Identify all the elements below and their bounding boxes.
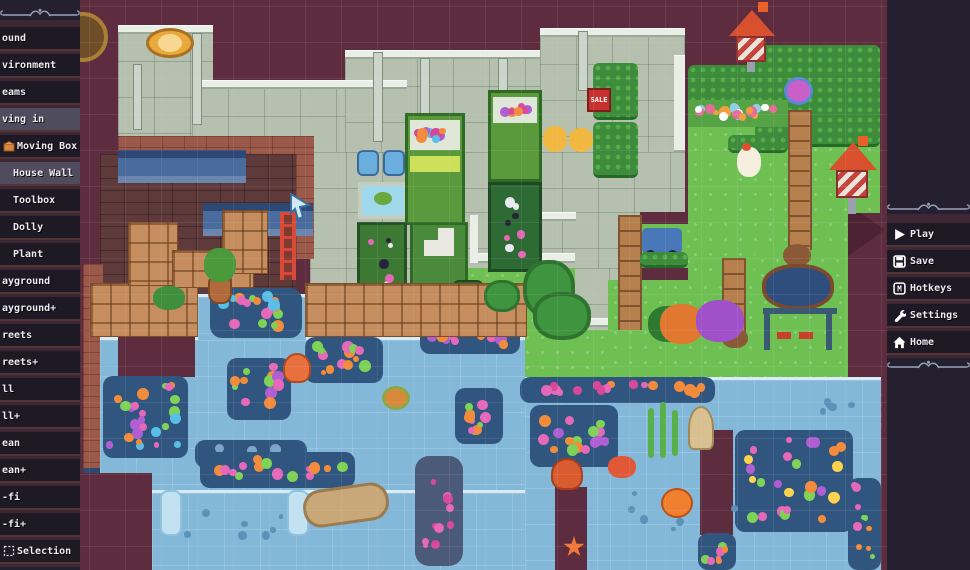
coral-dot <box>716 558 722 564</box>
layers-panel: oundvironmenteamsving inMoving BoxHouse … <box>0 0 80 570</box>
planter <box>593 122 638 178</box>
plant <box>204 248 236 282</box>
flower-bed <box>688 100 788 127</box>
octopus <box>283 353 311 383</box>
sidebar-item-ayground[interactable]: ayground <box>0 270 80 292</box>
chicken <box>737 147 761 177</box>
kelp <box>660 402 666 458</box>
coral-dot <box>477 400 488 411</box>
coral-patch <box>848 478 881 570</box>
sidebar-item-label: vironment <box>2 60 56 71</box>
coral-dot <box>769 105 777 113</box>
coral-dot <box>517 230 526 239</box>
coral-dot <box>852 483 861 492</box>
bush <box>153 286 185 310</box>
panel-ornament <box>0 6 80 20</box>
sign-flag <box>858 136 868 146</box>
coral-dot <box>539 415 551 427</box>
sidebar-item-house-wall[interactable]: House Wall <box>0 162 80 184</box>
coral-dot <box>832 461 842 471</box>
sidebar-item-selection[interactable]: Selection <box>0 540 80 562</box>
coral-dot <box>826 402 834 410</box>
coral-dot <box>321 370 327 376</box>
coral-dot <box>518 251 525 258</box>
selection-icon <box>3 545 15 557</box>
coral-dot <box>817 486 827 496</box>
sidebar-item-reets-plus[interactable]: reets+ <box>0 351 80 373</box>
sidebar-item-label: reets+ <box>2 357 38 368</box>
bg-gap <box>80 473 152 570</box>
coral-patch <box>530 405 618 467</box>
sidebar-item-fi[interactable]: -fi <box>0 486 80 508</box>
mouse-cursor <box>288 193 312 221</box>
sidebar-item-label: ll+ <box>2 411 20 422</box>
coral-dot <box>120 401 131 412</box>
pebbles <box>170 505 290 545</box>
coral-dot <box>707 557 715 565</box>
hedge <box>755 45 880 147</box>
coral-dot <box>805 481 817 493</box>
coral-dot <box>697 383 705 391</box>
coral-dot <box>379 259 389 269</box>
coral-dot <box>287 471 298 482</box>
sidebar-item-ean-plus[interactable]: ean+ <box>0 459 80 481</box>
chick <box>569 128 593 152</box>
bg-gap <box>555 487 587 570</box>
actions-list: PlaySaveMHotkeysSettingsHome <box>887 214 970 358</box>
sidebar-item-label: Toolbox <box>13 195 55 206</box>
coral-patch <box>305 337 383 383</box>
post <box>133 64 142 130</box>
coral-dot <box>353 356 359 362</box>
shelf-items <box>493 190 537 264</box>
action-button-label: Settings <box>910 310 958 321</box>
coral-dot <box>431 540 440 549</box>
coral-dot <box>465 403 473 411</box>
coral-dot <box>272 468 283 479</box>
layers-list: oundvironmenteamsving inMoving BoxHouse … <box>0 20 80 567</box>
sign-board <box>836 170 868 198</box>
coral-dot <box>162 423 168 429</box>
coral-dot <box>432 135 440 143</box>
machine-display <box>493 97 537 123</box>
coral-dot <box>243 368 250 375</box>
chair <box>357 150 379 176</box>
bush <box>484 280 520 312</box>
coral-dot <box>818 515 826 523</box>
coral-dot <box>385 274 394 283</box>
coral-dot <box>343 360 354 371</box>
action-button-label: Play <box>910 229 934 240</box>
bg-gap <box>118 337 195 377</box>
coral-dot <box>719 112 728 121</box>
tree <box>533 292 591 340</box>
coral-dot <box>326 365 335 374</box>
coral-dot <box>505 220 511 226</box>
sign-roof <box>729 10 775 36</box>
coral-dot <box>138 416 146 424</box>
swing-seat <box>799 332 813 339</box>
coral-dot <box>557 390 563 396</box>
crystal <box>160 490 182 536</box>
coral-dot <box>451 337 459 345</box>
coral-dot <box>786 437 792 443</box>
coral-dot <box>499 340 508 349</box>
coral-dot <box>229 469 237 477</box>
coral-dot <box>480 412 491 423</box>
sidebar-item-label: eams <box>2 87 26 98</box>
coral-dot <box>671 527 675 531</box>
crab <box>608 456 636 478</box>
home-icon <box>893 336 906 349</box>
sidebar-item-ean[interactable]: ean <box>0 432 80 454</box>
coral-dot <box>695 106 702 113</box>
coral-dot <box>684 384 696 396</box>
sidebar-item-label: -fi <box>2 492 20 503</box>
sidebar-item-label: House Wall <box>13 168 73 179</box>
action-button-label: Save <box>910 256 934 267</box>
crates <box>128 222 178 286</box>
coral-dot <box>253 297 261 305</box>
wood-path <box>618 215 642 330</box>
coral-dot <box>447 521 455 529</box>
shell <box>688 406 714 450</box>
coral-dot <box>240 377 248 385</box>
coral-dot <box>446 504 454 512</box>
sea-turtle <box>382 386 410 410</box>
sidebar-item-label: ound <box>2 33 26 44</box>
octopus <box>551 458 583 490</box>
coral-dot <box>640 515 649 524</box>
coral-dot <box>784 488 793 497</box>
sidebar-item-dolly[interactable]: Dolly <box>0 216 80 238</box>
pond <box>762 264 834 310</box>
coral-dot <box>417 128 428 139</box>
ledge <box>540 28 685 37</box>
coral-dot <box>567 444 578 455</box>
flower-bush <box>696 300 744 342</box>
coral-dot <box>273 379 284 390</box>
coral-dot <box>820 408 826 414</box>
action-button-label: Home <box>910 337 934 348</box>
post <box>373 52 383 142</box>
sidebar-item-vironment[interactable]: vironment <box>0 54 80 76</box>
coral-dot <box>239 462 247 470</box>
sidebar-item-ll[interactable]: ll <box>0 378 80 400</box>
blue-wall <box>118 150 246 183</box>
coral-dot <box>264 397 276 409</box>
wood-path <box>788 110 812 250</box>
chick <box>543 126 567 152</box>
coral-dot <box>229 319 240 330</box>
coral-dot <box>279 514 284 519</box>
box-icon <box>3 140 15 152</box>
coral-row <box>520 377 715 403</box>
coral-dot <box>731 505 738 512</box>
coral-dot <box>388 243 393 248</box>
coral-dot <box>674 381 685 392</box>
coral-dot <box>258 319 267 328</box>
coral-dot <box>312 341 323 352</box>
coral-dot <box>270 527 276 533</box>
coral-dot <box>309 462 320 473</box>
coral-dot <box>431 479 436 484</box>
ledge <box>470 215 478 263</box>
dirt-mound <box>783 244 811 266</box>
post <box>192 33 202 125</box>
chicken-comb <box>742 143 751 151</box>
sidebar-item-toolbox[interactable]: Toolbox <box>0 189 80 211</box>
coral-dot <box>783 452 792 461</box>
panel-ornament <box>887 358 970 372</box>
coral-dot <box>739 113 747 121</box>
coral-dot <box>596 420 604 428</box>
swing-post <box>826 308 832 350</box>
editor-window: SALE oundvironmenteamsving inMoving BoxH… <box>0 0 970 570</box>
coral-dot <box>132 428 143 439</box>
coral-dot <box>241 521 248 528</box>
coral-dot <box>761 104 768 111</box>
sidebar-item-label: ayground <box>2 276 50 287</box>
machine-band <box>410 156 460 172</box>
coral-dot <box>261 458 272 469</box>
coral-dot <box>870 554 875 559</box>
coral-dot <box>750 446 758 454</box>
coral-dot <box>553 428 563 438</box>
sidebar-item-ayground-plus[interactable]: ayground+ <box>0 297 80 319</box>
coral-dot <box>151 427 161 437</box>
sidebar-item-label: ayground+ <box>2 303 56 314</box>
coral-dot <box>368 239 374 245</box>
coral-dot <box>593 381 601 389</box>
pool-turtle <box>374 192 392 205</box>
swing-seat <box>777 332 791 339</box>
action-button-hotkeys[interactable]: MHotkeys <box>887 277 970 299</box>
coral-dot <box>131 402 139 410</box>
coral-dot <box>386 238 391 243</box>
sidebar-item-reets[interactable]: reets <box>0 324 80 346</box>
map-canvas[interactable]: SALE <box>0 0 970 570</box>
keycap-m-icon: M <box>893 282 906 295</box>
coral-dot <box>355 346 364 355</box>
coral-dot <box>339 464 345 470</box>
coral-dot <box>422 538 429 545</box>
coral-dot <box>629 380 637 388</box>
coral-dot <box>538 434 549 445</box>
sidebar-item-label: Plant <box>13 249 43 260</box>
coral-dot <box>268 299 280 311</box>
play-icon <box>893 228 906 241</box>
sidebar-item-ving-in[interactable]: ving in <box>0 108 80 130</box>
kelp <box>672 410 678 456</box>
coral-dot <box>746 464 756 474</box>
coral-dot <box>632 491 637 496</box>
coral-dot <box>439 128 445 134</box>
sidebar-item-label: ean <box>2 438 20 449</box>
sidebar-item-eams[interactable]: eams <box>0 81 80 103</box>
pebbles <box>770 390 860 420</box>
clock-face <box>158 34 182 52</box>
sidebar-item-fi-plus[interactable]: -fi+ <box>0 513 80 535</box>
svg-text:M: M <box>897 284 902 293</box>
coral-dot <box>581 445 590 454</box>
coral-dot <box>170 395 179 404</box>
sidebar-item-label: ean+ <box>2 465 26 476</box>
coral-dot <box>154 442 160 448</box>
coral-dot <box>541 385 552 396</box>
kelp <box>648 408 654 458</box>
action-button-settings[interactable]: Settings <box>887 304 970 326</box>
coral-dot <box>513 203 519 209</box>
coral-dot <box>628 506 635 513</box>
coral-dot <box>828 492 840 504</box>
actions-panel: PlaySaveMHotkeysSettingsHome <box>887 0 970 570</box>
coral-dot <box>829 446 839 456</box>
sale-sign: SALE <box>587 88 611 112</box>
ladder <box>280 212 296 280</box>
coral-dot <box>590 437 600 447</box>
swing-post <box>764 308 770 350</box>
coral-dot <box>746 107 753 114</box>
ledge <box>674 55 685 152</box>
ball <box>784 77 813 105</box>
coral-dot <box>565 437 574 446</box>
coral-dot <box>641 382 647 388</box>
coral-dot <box>434 523 444 533</box>
coral-patch <box>103 376 188 458</box>
coral-dot <box>230 376 240 386</box>
sidebar-item-label: Dolly <box>13 222 43 233</box>
coral-dot <box>722 546 728 552</box>
coral-dot <box>677 521 682 526</box>
coral-dot <box>262 531 271 540</box>
hedge-bump <box>640 252 688 268</box>
coral-dot <box>565 416 574 425</box>
coral-dot <box>443 494 453 504</box>
coral-dot <box>359 360 371 372</box>
sign-flag <box>758 2 768 12</box>
coral-dot <box>165 383 173 391</box>
coral-dot <box>601 437 609 445</box>
wreck-coral <box>418 470 460 560</box>
coral-dot <box>514 107 523 116</box>
coral-dot <box>243 299 251 307</box>
coral-dot <box>863 515 868 520</box>
coral-patch <box>227 358 291 420</box>
sidebar-item-label: ll <box>2 384 14 395</box>
chair <box>383 150 405 176</box>
sidebar-item-label: Selection <box>17 546 71 557</box>
coral-dot <box>573 386 582 395</box>
coral-dot <box>238 531 247 540</box>
coral-dot <box>505 244 513 252</box>
coral-dot <box>137 388 149 400</box>
coral-dot <box>324 465 330 471</box>
save-icon <box>893 255 906 268</box>
coral-dot <box>792 459 802 469</box>
coral-dot <box>866 526 872 532</box>
wrench-icon <box>893 309 906 322</box>
coral-dot <box>848 402 854 408</box>
sidebar-item-ound[interactable]: ound <box>0 27 80 49</box>
sidebar-item-plant[interactable]: Plant <box>0 243 80 265</box>
sidebar-item-label: ving in <box>2 114 44 125</box>
sidebar-item-label: reets <box>2 330 32 341</box>
action-button-play[interactable]: Play <box>887 223 970 245</box>
pufferfish <box>661 488 693 518</box>
sidebar-item-ll-plus[interactable]: ll+ <box>0 405 80 427</box>
coral-dot <box>504 235 510 241</box>
sidebar-item-label: -fi+ <box>2 519 26 530</box>
coral-dot <box>174 441 182 449</box>
coral-dot <box>774 480 782 488</box>
post <box>578 31 588 91</box>
action-button-label: Hotkeys <box>910 283 952 294</box>
sign-board <box>736 36 766 62</box>
action-button-home[interactable]: Home <box>887 331 970 353</box>
coral-dot <box>241 398 250 407</box>
coral-dot <box>648 381 657 390</box>
coral-patch <box>455 388 503 444</box>
action-button-save[interactable]: Save <box>887 250 970 272</box>
coral-patch <box>200 452 355 488</box>
coral-dot <box>855 504 861 510</box>
coral-dot <box>202 509 210 517</box>
machine-display <box>410 120 460 150</box>
coral-dot <box>550 446 557 453</box>
coral-dot <box>744 455 753 464</box>
keypad <box>424 240 454 256</box>
sidebar-item-moving-box[interactable]: Moving Box <box>0 135 80 157</box>
coral-dot <box>853 522 861 530</box>
coral-dot <box>170 413 181 424</box>
coral-dot <box>856 544 862 550</box>
sidebar-item-label: Moving Box <box>17 141 77 152</box>
coral-dot <box>512 213 518 219</box>
coral-dot <box>866 546 871 551</box>
coral-dot <box>184 531 191 538</box>
coral-dot <box>106 441 113 448</box>
panel-ornament <box>887 200 970 214</box>
